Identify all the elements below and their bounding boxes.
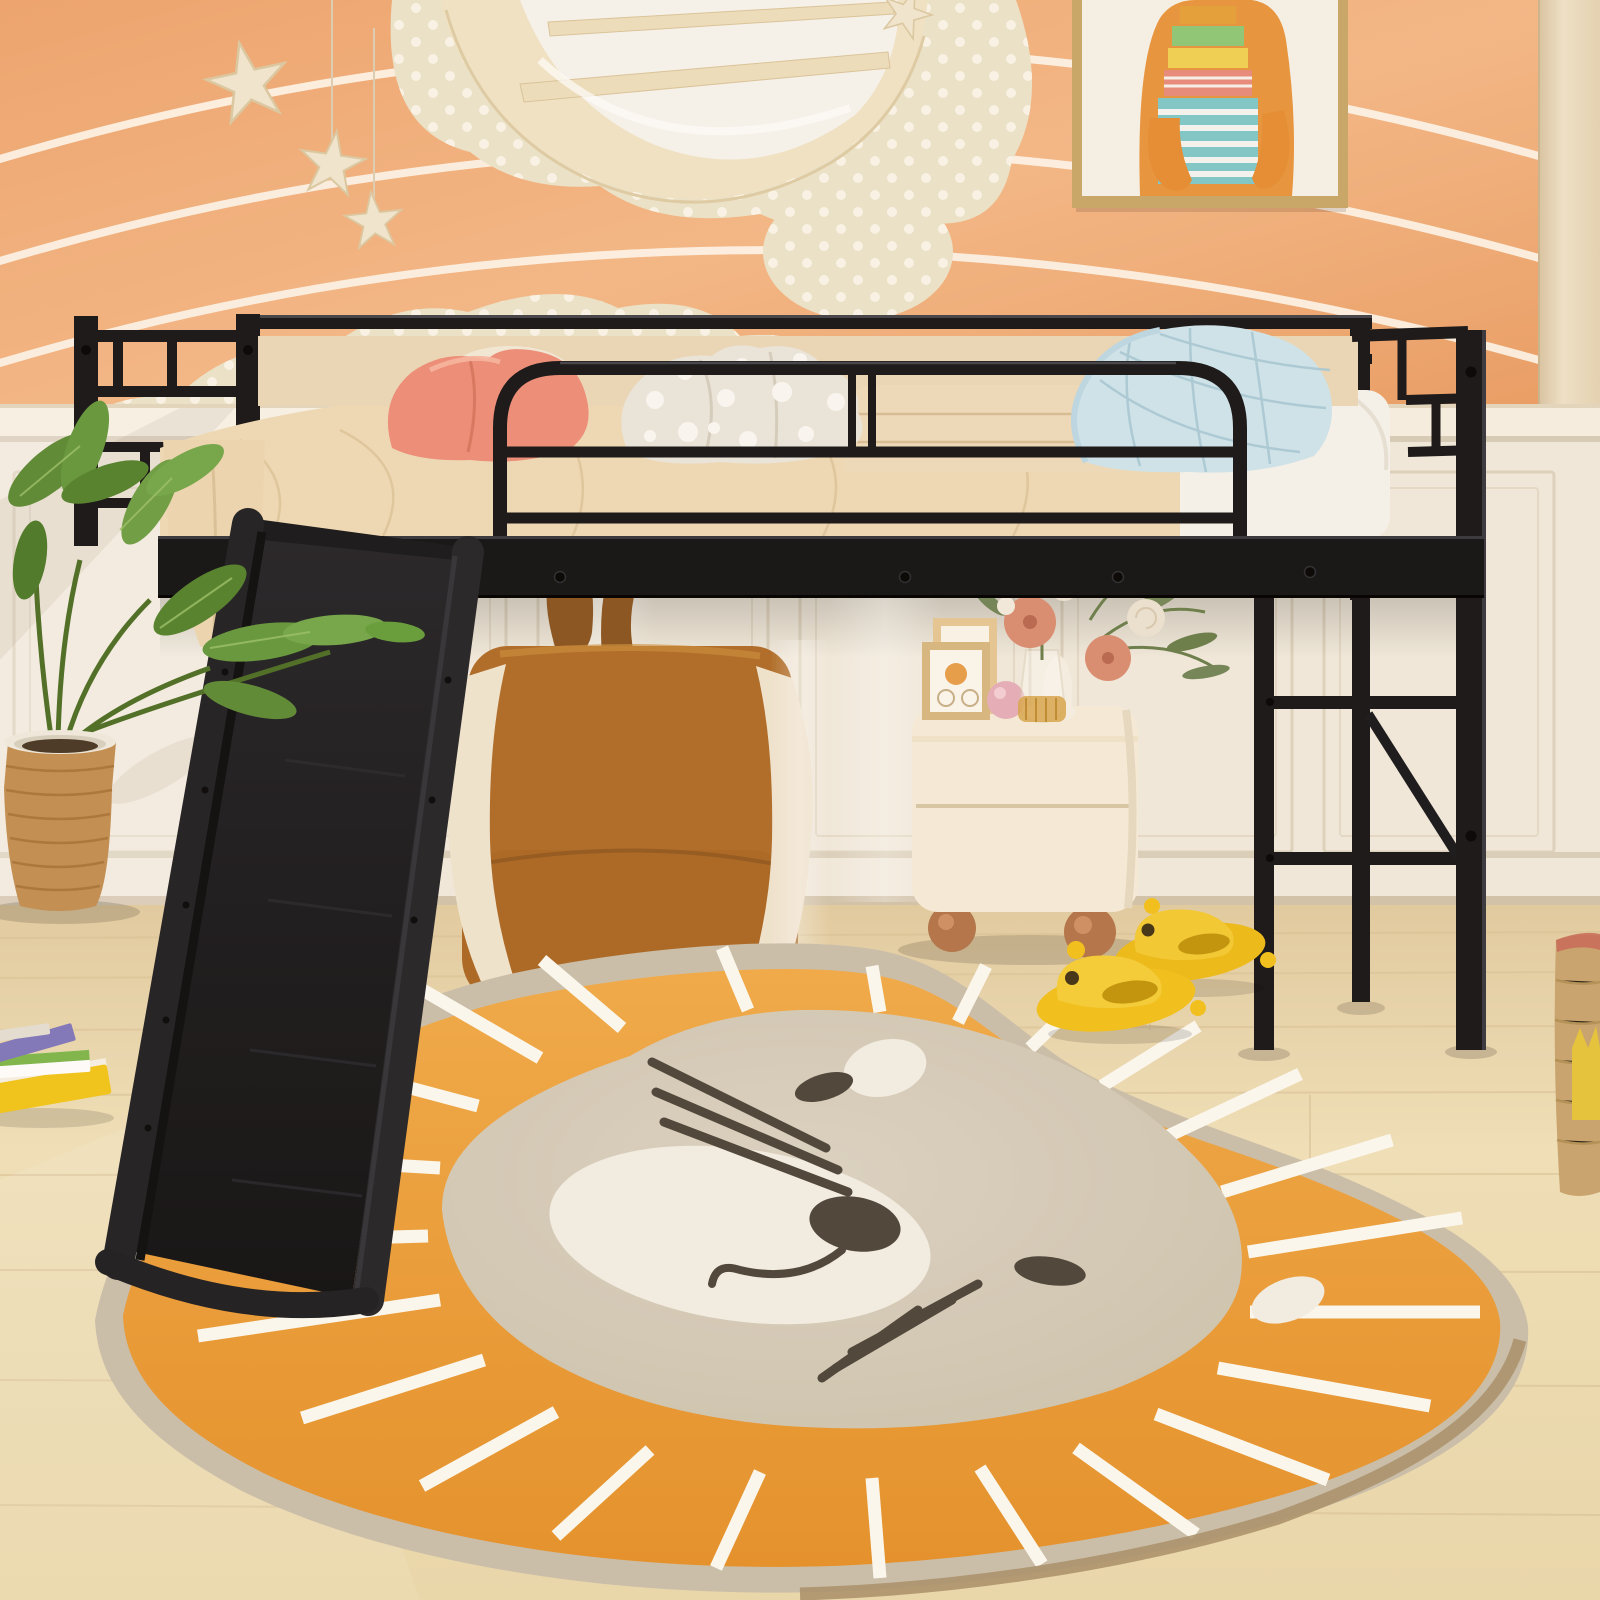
warm-tint-overlay bbox=[0, 0, 1600, 1600]
scene-canvas bbox=[0, 0, 1600, 1600]
bedroom-photo bbox=[0, 0, 1600, 1600]
